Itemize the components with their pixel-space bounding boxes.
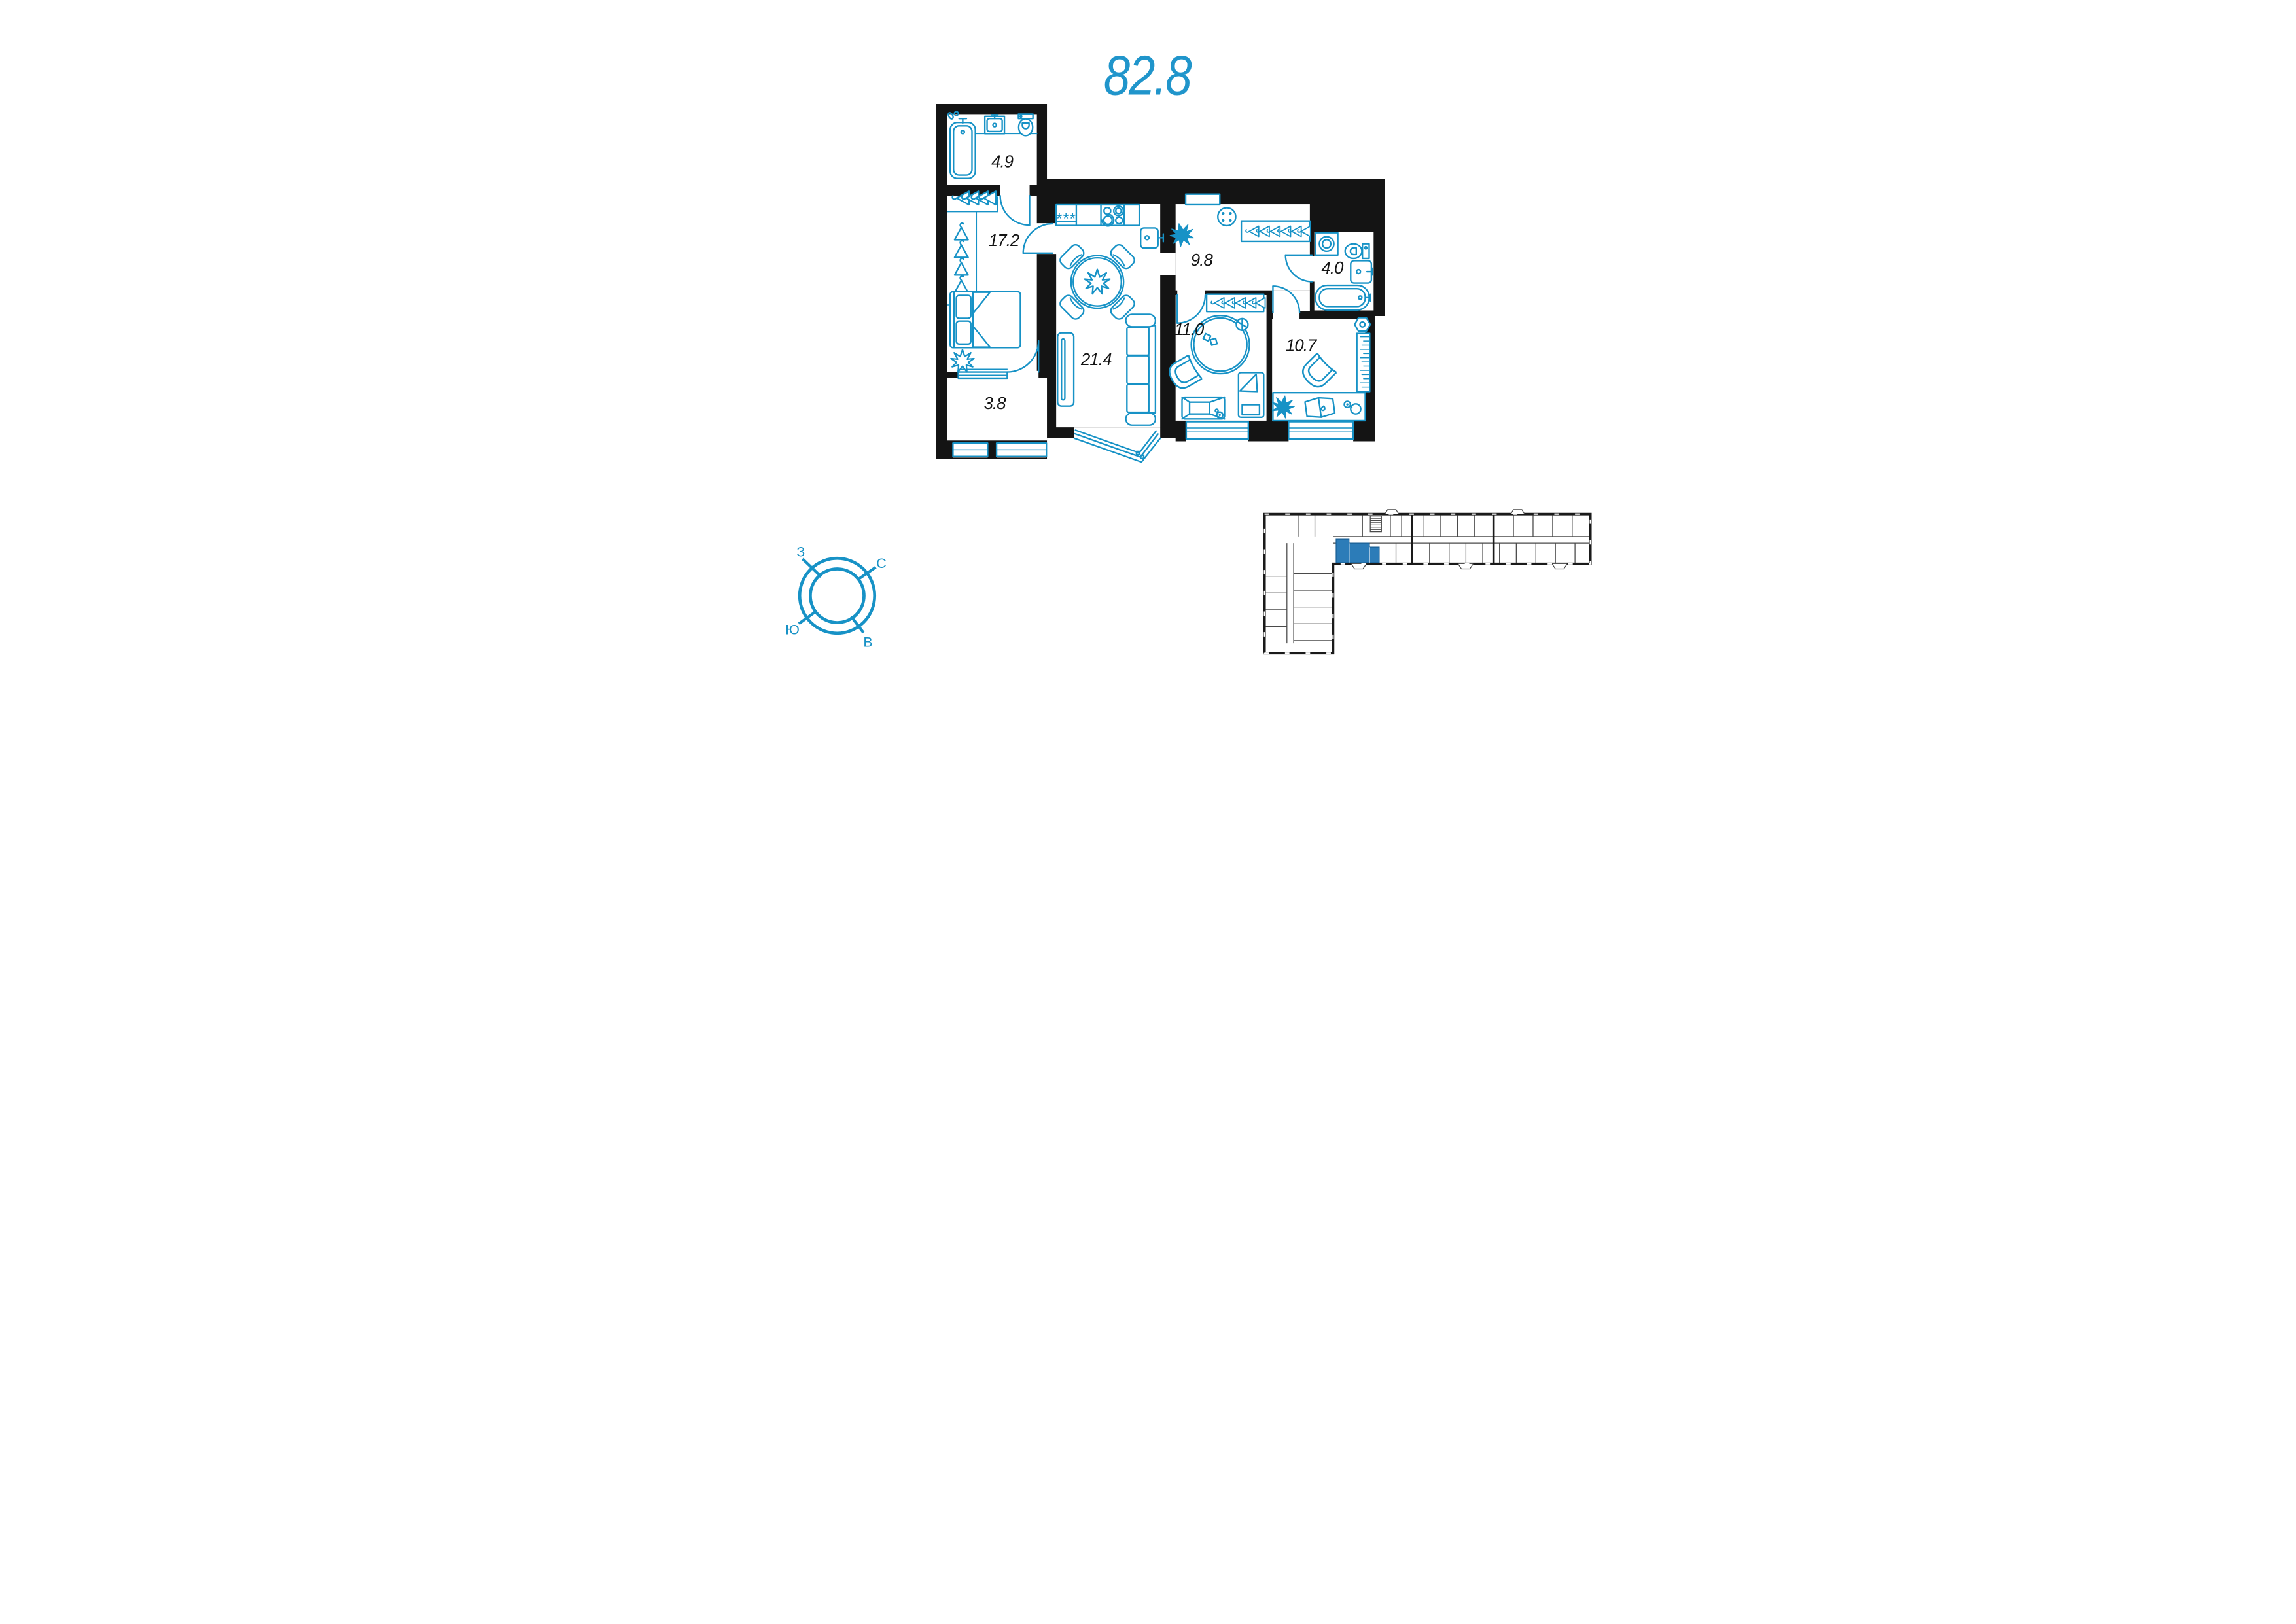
label-bathroom-top: 4.9: [991, 153, 1014, 171]
label-hallway: 9.8: [1190, 251, 1213, 270]
label-living-kitchen: 21.4: [1080, 351, 1112, 369]
sofa-icon: [1125, 314, 1155, 425]
door-opening-bathroom-top: [1000, 183, 1029, 197]
bathtub-icon: [950, 118, 975, 178]
piano-icon: [1356, 334, 1369, 392]
toilet-right-icon: [1345, 244, 1369, 258]
minimap: [1264, 510, 1590, 653]
room-hallway-floor: [1175, 204, 1309, 291]
bay-opening: [1074, 427, 1159, 439]
compass-label-east: В: [863, 634, 872, 650]
total-area-title: 82.8: [1103, 44, 1192, 107]
fridge-icon: ***: [1056, 210, 1076, 228]
minimap-building-outline: [1264, 514, 1590, 653]
toilet-icon: [1018, 114, 1033, 135]
desk-icon: [1270, 393, 1365, 421]
kitchen-counter: ***: [1056, 205, 1139, 228]
door-opening-study: [1273, 310, 1299, 320]
compass-inner-ring: [810, 569, 864, 622]
compass-label-south: Ю: [785, 622, 800, 638]
compass-label-west: З: [796, 544, 805, 560]
title-area: 82.8: [1103, 44, 1192, 107]
hallway-wardrobe: [1241, 221, 1311, 241]
double-bed-icon: [950, 292, 1020, 347]
nursery-wardrobe: [1207, 294, 1265, 312]
hex-lamp-icon: [1354, 318, 1370, 332]
label-balcony: 3.8: [983, 395, 1006, 413]
single-bed-icon: [1238, 372, 1263, 417]
label-bathroom-right: 4.0: [1321, 259, 1344, 277]
sink-right-icon: [1351, 260, 1372, 283]
washing-machine-icon: [1315, 233, 1337, 255]
label-nursery: 11.0: [1174, 321, 1204, 339]
bathtub-right-icon: [1315, 285, 1370, 310]
dresser-icon: [1182, 397, 1224, 419]
page: 82.8: [658, 0, 1639, 694]
compass: З С Ю В: [785, 544, 886, 650]
floor-plan-sheet: 82.8: [658, 0, 1639, 694]
label-bedroom: 17.2: [988, 232, 1019, 250]
compass-label-north: С: [876, 556, 886, 571]
tv-icon: [1057, 333, 1074, 406]
entrance-niche: [1186, 194, 1220, 205]
label-study: 10.7: [1285, 336, 1317, 355]
floor-plan: ***: [936, 104, 1385, 462]
